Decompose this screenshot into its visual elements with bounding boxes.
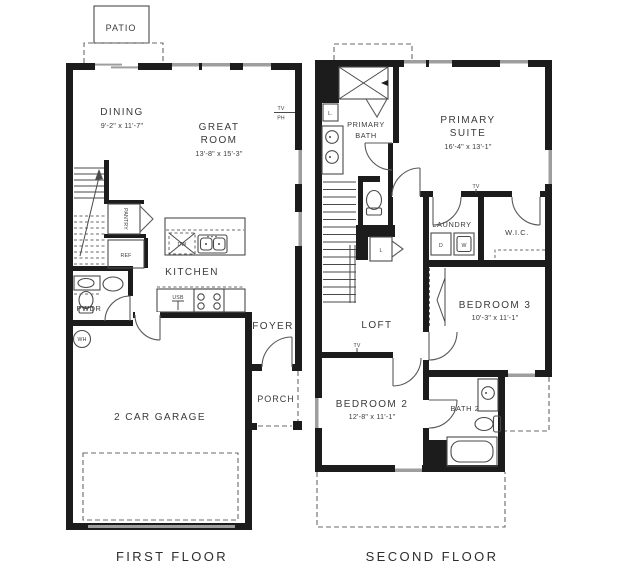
roof-outline-top (334, 44, 412, 60)
bedroom3-door (429, 332, 457, 360)
patio-label: PATIO (106, 23, 137, 33)
bedroom3-dims: 10'-3" x 11'-1" (472, 313, 519, 322)
tv-marker-label: TV (277, 106, 284, 112)
bedroom3-label: BEDROOM 3 (459, 300, 532, 311)
wc-toilet-bowl (367, 191, 382, 210)
primary-bath-label-1: PRIMARY (347, 120, 385, 129)
dining-label: DINING (100, 107, 143, 118)
garage-label: 2 CAR GARAGE (114, 412, 206, 423)
great-room-dims: 13'-8" x 15'-3" (195, 149, 242, 158)
first-floor-caption: FIRST FLOOR (116, 549, 228, 564)
floor-plan-page: PATIO (0, 0, 617, 582)
kitchen-label: KITCHEN (165, 267, 219, 278)
wic-door (512, 197, 540, 225)
wh-label: WH (77, 337, 86, 343)
pwdr-label: PWDR (77, 304, 102, 313)
usb-label: USB (172, 295, 184, 301)
powder-door (105, 296, 130, 321)
powder-room: PWDR (74, 276, 123, 313)
suite-right-window (549, 150, 553, 184)
great-room-right-window-1 (299, 150, 303, 184)
second-floor-plan: L. PRIMARY BATH L LAUNDRY D (315, 44, 552, 527)
bedroom2-window (315, 398, 319, 428)
primary-bath-label-2: BATH (355, 131, 377, 140)
primary-vanity (322, 126, 343, 174)
refrigerator-nook: REF (108, 240, 144, 268)
front-door (262, 337, 292, 367)
roof-outline-bottom (317, 472, 505, 527)
primary-suite-label-2: SUITE (450, 128, 486, 139)
tv-ph-outlet-marker: TV PH (274, 106, 295, 122)
walk-in-closet: W.I.C. (495, 228, 545, 258)
powder-sink (78, 279, 94, 288)
roof-outline-right (505, 373, 549, 431)
bath2-sink (482, 387, 495, 400)
dryer-label: D (439, 243, 443, 249)
first-floor-exterior-walls (66, 63, 302, 530)
bath2-toilet-bowl (475, 418, 493, 431)
bath2-label: BATH 2 (451, 404, 480, 413)
linen-closet-lower: L (370, 237, 403, 261)
linen-upper-label: L. (328, 111, 333, 117)
pantry-label: PANTRY (122, 208, 128, 230)
foyer-label: FOYER (252, 321, 293, 332)
garage-door-dashed (83, 453, 238, 520)
powder-basin (103, 277, 123, 291)
primary-bath-door (365, 143, 392, 170)
great-room-top-window (243, 63, 271, 67)
garage-door-panel (88, 525, 235, 528)
bedroom2-bottom-window (395, 469, 422, 473)
bedroom2-door (393, 358, 421, 386)
first-floor-stairs (74, 168, 106, 264)
ph-marker-label: PH (277, 116, 285, 122)
linen-door-wedge (392, 241, 403, 257)
kitchen-counter: USB (157, 287, 245, 312)
pantry-door-wedge (140, 206, 153, 232)
patio-slider-window (95, 64, 122, 66)
porch-label: PORCH (257, 394, 295, 404)
primary-sink-2 (326, 151, 339, 164)
pantry-closet: PANTRY (108, 204, 153, 234)
porch: PORCH (257, 371, 298, 426)
wic-label: W.I.C. (505, 228, 529, 237)
second-floor-caption: SECOND FLOOR (366, 549, 499, 564)
loft-tv-marker: TV (353, 343, 360, 352)
laundry-room: LAUNDRY D W (431, 220, 474, 255)
great-room-right-window-2 (299, 212, 303, 246)
bath2: BATH 2 (447, 379, 501, 466)
bath2-vanity (478, 379, 498, 411)
shower-door-wedge (366, 99, 387, 117)
water-heater: WH (74, 331, 91, 348)
linen-lower-label: L (379, 248, 382, 254)
garage: 2 CAR GARAGE (83, 412, 238, 520)
primary-suite-label-1: PRIMARY (440, 115, 495, 126)
bedroom2-label: BEDROOM 2 (336, 399, 409, 410)
bedroom2-dims: 12'-8" x 11'-1" (349, 412, 396, 421)
dw-label: DW (177, 242, 186, 248)
dining-dims: 9'-2" x 11'-7" (101, 121, 144, 130)
floor-plan-image: PATIO (0, 0, 617, 582)
first-floor-windows (88, 63, 302, 528)
second-floor-stairs (323, 182, 356, 303)
loft-label: LOFT (361, 320, 392, 331)
patio: PATIO (84, 6, 163, 63)
ref-label: REF (121, 253, 132, 259)
first-floor-plan: PATIO (66, 6, 302, 530)
great-room-label-2: ROOM (201, 135, 238, 146)
garage-entry-door (135, 315, 160, 340)
suite-top-window-2 (500, 60, 528, 64)
washer-label: W (461, 243, 466, 249)
kitchen-island: DW (165, 218, 245, 255)
bedroom3-window (508, 374, 535, 378)
patio-dashed-outline (84, 43, 163, 63)
bedroom3-closet (430, 268, 446, 326)
primary-sink-1 (326, 131, 339, 144)
primary-suite-dims: 16'-4" x 13'-1" (444, 142, 491, 151)
great-room-label-1: GREAT (199, 122, 240, 133)
